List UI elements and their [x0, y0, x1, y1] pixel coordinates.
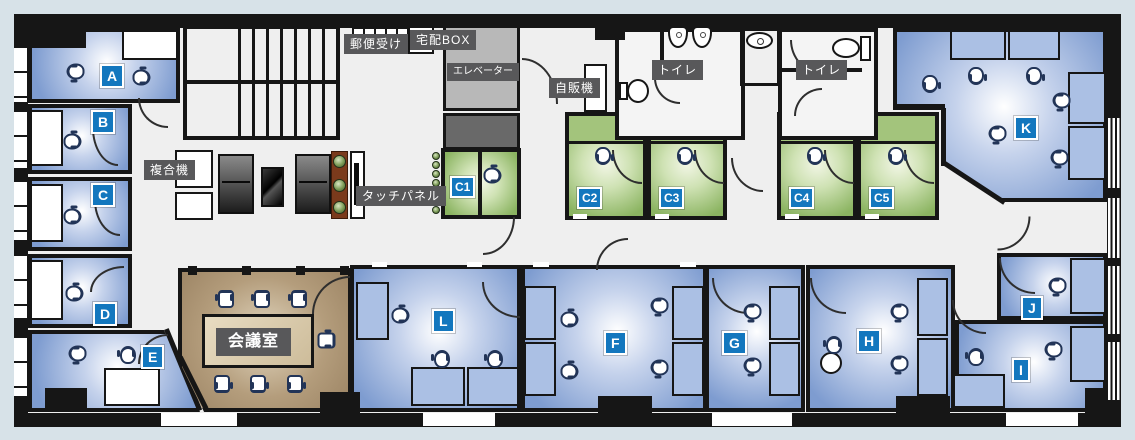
chair-icon	[118, 346, 134, 361]
wall-post	[296, 266, 305, 275]
stair-landing-line	[187, 80, 336, 84]
plant-icon	[333, 179, 346, 192]
wall-segment	[893, 104, 945, 110]
room-label-e: E	[141, 345, 164, 369]
door-threshold	[680, 262, 696, 267]
desk	[30, 184, 63, 242]
plant-icon	[432, 206, 440, 214]
facility-label-touch-panel: タッチパネル	[356, 186, 446, 206]
facility-label-copier: 複合機	[144, 160, 195, 180]
facility-label-vending-machine: 自販機	[549, 78, 600, 98]
chair-icon	[69, 284, 84, 300]
chair-icon	[485, 350, 501, 365]
window	[14, 338, 27, 396]
window	[1108, 118, 1121, 188]
room-label-i: I	[1012, 358, 1030, 382]
room-label-c5: C5	[869, 187, 894, 209]
wall-post	[242, 266, 251, 275]
chair-icon	[216, 290, 232, 305]
window	[1108, 342, 1121, 400]
wall-segment	[896, 396, 950, 413]
chair-icon	[289, 378, 305, 393]
plant-icon	[333, 155, 346, 168]
floor-plan: 郵便受け 宅配BOX エレベーター 自販機 トイレ トイレ 複合機 タッチパネル…	[0, 0, 1135, 440]
window	[158, 413, 240, 426]
chair-icon	[1051, 152, 1066, 168]
toilet-tank	[860, 36, 871, 61]
chair-icon	[289, 290, 305, 305]
desk	[30, 260, 63, 320]
room-label-l: L	[432, 309, 455, 333]
chair-icon	[891, 306, 906, 322]
desk	[672, 286, 704, 340]
door-threshold	[865, 214, 879, 219]
desk	[950, 30, 1006, 60]
facility-label-toilet-right: トイレ	[796, 60, 847, 80]
desk	[122, 30, 178, 60]
stairs	[183, 25, 340, 140]
chair-icon	[67, 132, 82, 148]
wall-segment	[28, 28, 86, 48]
room-label-c4: C4	[789, 187, 814, 209]
wall-post	[340, 266, 349, 275]
chair-icon	[970, 70, 986, 85]
plant-icon	[333, 201, 346, 214]
facility-label-delivery-box: 宅配BOX	[410, 30, 476, 50]
chair-icon	[966, 348, 982, 363]
wall-post	[188, 266, 197, 275]
desk	[104, 368, 160, 406]
chair-icon	[432, 350, 448, 365]
wall-segment	[595, 14, 625, 40]
desk	[524, 286, 556, 340]
desk	[769, 342, 800, 396]
chair-icon	[1049, 280, 1064, 296]
desk	[1068, 126, 1106, 180]
chair-icon	[651, 300, 666, 316]
chair-icon	[679, 150, 695, 165]
door-threshold	[533, 262, 549, 267]
room-label-c1: C1	[450, 176, 475, 198]
plant-icon	[432, 152, 440, 160]
round-table-icon	[820, 352, 842, 374]
room-label-c2: C2	[577, 187, 602, 209]
desk	[467, 367, 519, 406]
chair-icon	[395, 306, 410, 322]
desk	[917, 338, 948, 396]
door-threshold	[467, 262, 482, 267]
chair-icon	[1053, 95, 1068, 111]
chair-icon	[321, 331, 336, 347]
copier-stand	[175, 192, 213, 220]
chair-icon	[564, 362, 579, 378]
chair-icon	[809, 150, 825, 165]
room-label-f: F	[604, 331, 627, 355]
room-label-b: B	[91, 110, 115, 134]
window	[14, 112, 27, 168]
chair-icon	[744, 306, 759, 322]
chair-icon	[989, 128, 1004, 144]
window	[1108, 266, 1121, 334]
service-room	[443, 113, 520, 150]
chair-icon	[252, 290, 268, 305]
window	[1003, 413, 1081, 426]
desk	[953, 374, 1005, 408]
sofa-icon	[218, 154, 254, 214]
chair-icon	[67, 207, 82, 223]
desk	[1008, 30, 1060, 60]
coffee-table-icon	[261, 167, 284, 207]
desk	[411, 367, 465, 406]
plant-icon	[432, 170, 440, 178]
chair-icon	[891, 358, 906, 374]
door-threshold	[573, 214, 587, 219]
desk	[1068, 72, 1106, 124]
room-label-h: H	[857, 329, 881, 353]
wall-segment	[320, 392, 360, 413]
chair-icon	[69, 348, 84, 364]
chair-icon	[651, 362, 666, 378]
desk	[769, 286, 800, 340]
room-label-a: A	[100, 64, 124, 88]
sink-icon	[746, 32, 773, 49]
chair-icon	[1045, 344, 1060, 360]
facility-label-mailbox: 郵便受け	[344, 34, 408, 54]
door-threshold	[785, 214, 799, 219]
chair-icon	[216, 378, 232, 393]
room-label-j: J	[1021, 296, 1043, 320]
chair-icon	[924, 78, 940, 93]
room-label-d: D	[93, 302, 117, 326]
room-label-c: C	[91, 183, 115, 207]
room-label-g: G	[722, 331, 747, 355]
desk	[672, 342, 704, 396]
facility-label-elevator: エレベーター	[447, 63, 519, 81]
facility-label-meeting-room: 会議室	[216, 328, 291, 356]
desk	[30, 110, 63, 166]
plant-icon	[432, 161, 440, 169]
sofa-icon	[295, 154, 331, 214]
chair-icon	[597, 150, 613, 165]
chair-icon	[824, 336, 840, 351]
chair-icon	[564, 310, 579, 326]
room-label-k: K	[1014, 116, 1038, 140]
toilet-icon	[832, 38, 860, 58]
window	[14, 256, 27, 318]
desk	[1070, 326, 1106, 382]
desk	[356, 282, 389, 340]
window	[14, 48, 27, 102]
chair-icon	[744, 360, 759, 376]
window	[420, 413, 498, 426]
chair-icon	[487, 166, 502, 182]
window	[709, 413, 795, 426]
facility-label-toilet-left: トイレ	[652, 60, 703, 80]
desk	[1070, 258, 1106, 314]
chair-icon	[136, 68, 151, 84]
chair-icon	[890, 150, 906, 165]
wall-segment	[941, 108, 946, 166]
wall-segment	[598, 396, 652, 413]
wall-segment	[478, 150, 482, 217]
desk	[524, 342, 556, 396]
chair-icon	[67, 66, 82, 82]
window	[1108, 198, 1121, 258]
door-threshold	[655, 214, 669, 219]
toilet-icon	[627, 79, 649, 103]
window	[14, 182, 27, 240]
wall-segment	[45, 388, 87, 410]
chair-icon	[1028, 70, 1044, 85]
chair-icon	[252, 378, 268, 393]
room-label-c3: C3	[659, 187, 684, 209]
desk	[917, 278, 948, 336]
door-threshold	[372, 262, 387, 267]
